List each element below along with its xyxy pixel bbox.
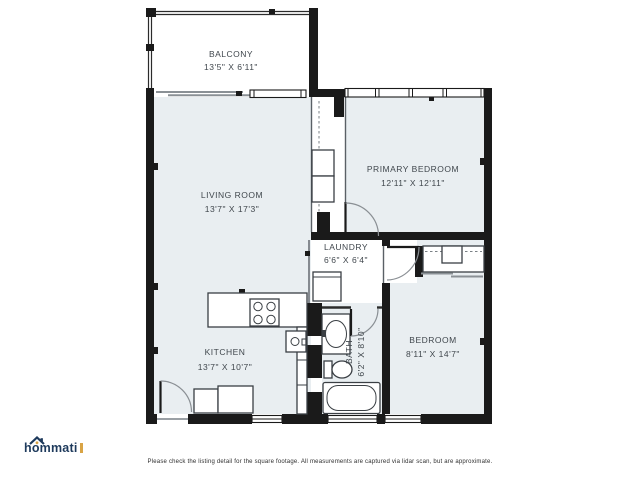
- hall-closet: [312, 97, 346, 232]
- logo-wordmark: hommati: [24, 441, 78, 455]
- tick-mark: [480, 338, 484, 345]
- bathtub-icon: [323, 383, 380, 414]
- bedroom-closet: [421, 246, 484, 277]
- logo-accent-bar: [80, 443, 84, 453]
- kitchen-island: [208, 293, 307, 327]
- balcony-window-symbol: [250, 90, 306, 98]
- balcony-dims: 13'5" X 6'11": [204, 62, 258, 72]
- tick-mark: [269, 9, 275, 14]
- kitchen-sink-icon: [286, 331, 307, 352]
- balcony-label: BALCONY: [209, 49, 253, 59]
- stove-icon: [250, 299, 279, 326]
- closet-shelf: [312, 176, 334, 202]
- kitchen-window: [252, 414, 282, 424]
- tick-mark: [429, 97, 434, 101]
- kitchen-label: KITCHEN: [205, 347, 246, 357]
- bedroom-window: [385, 414, 421, 424]
- primary-bedroom-dims: 12'11" X 12'11": [381, 178, 445, 188]
- tick-mark: [305, 251, 310, 256]
- tick-mark: [154, 347, 158, 354]
- kitchen-dims: 13'7" X 10'7": [198, 362, 253, 372]
- closet-shelf: [312, 150, 334, 176]
- tick-mark: [154, 163, 158, 170]
- kitchen-cabinets: [194, 386, 253, 413]
- bath-label: BATH: [344, 340, 354, 364]
- hommati-logo: hommati: [24, 441, 83, 455]
- living-room-label: LIVING ROOM: [201, 190, 263, 200]
- laundry-dims: 6'6" X 6'4": [324, 255, 368, 265]
- kitchen-entry-threshold: [157, 414, 188, 424]
- bath-window: [328, 414, 377, 424]
- tick-mark: [480, 158, 484, 165]
- floorplan-drawing: BALCONY 13'5" X 6'11" LIVING ROOM 13'7" …: [0, 0, 640, 480]
- logo-roof-icon: [29, 436, 45, 445]
- tick-mark: [154, 283, 158, 290]
- bath-dims: 6'2" X 8'10": [356, 327, 366, 376]
- tick-mark: [236, 91, 242, 96]
- washer-icon: [313, 272, 341, 301]
- primary-bedroom-window: [345, 89, 484, 98]
- disclaimer-text: Please check the listing detail for the …: [0, 459, 640, 465]
- closet-shelf: [442, 246, 462, 263]
- bedroom-label: BEDROOM: [409, 335, 456, 345]
- living-room-dims: 13'7" X 17'3": [205, 204, 260, 214]
- floorplan-page: BALCONY 13'5" X 6'11" LIVING ROOM 13'7" …: [0, 0, 640, 480]
- bedroom-dims: 8'11" X 14'7": [406, 349, 460, 359]
- primary-bedroom-label: PRIMARY BEDROOM: [367, 164, 459, 174]
- laundry-label: LAUNDRY: [324, 242, 368, 252]
